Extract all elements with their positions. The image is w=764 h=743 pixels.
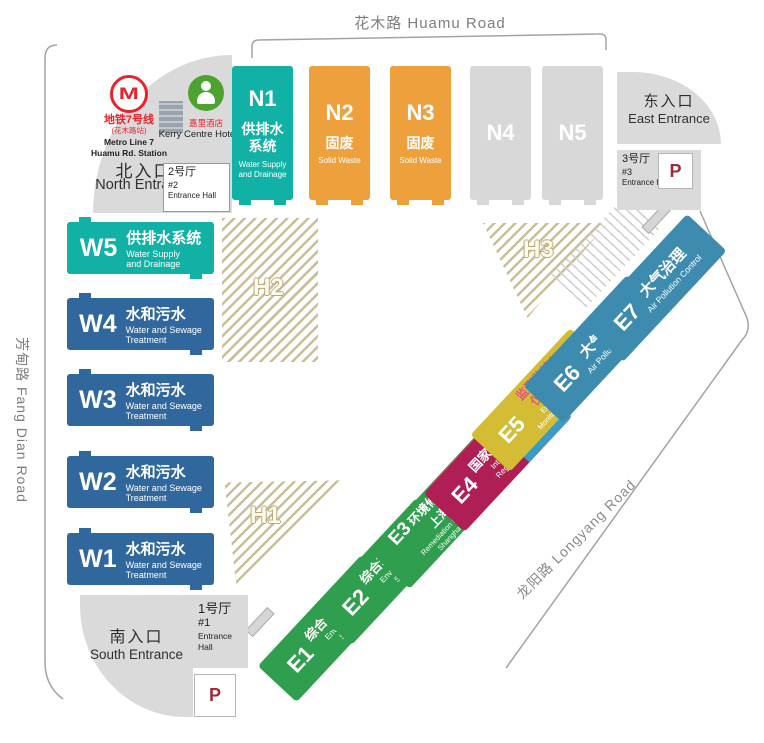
hall-n4-code: N4 xyxy=(486,120,514,146)
zone-h1: H1 xyxy=(222,478,346,592)
hall-n3-code: N3 xyxy=(406,100,434,126)
hall-n1-code: N1 xyxy=(248,86,276,112)
east-entrance-label-en: East Entrance xyxy=(617,111,721,126)
entrance-hall-1: 1号厅 #1 Entrance Hall xyxy=(193,595,248,668)
hall-w3-cn: 水和污水 xyxy=(126,379,202,400)
road-label-huamu: 花木路 Huamu Road xyxy=(330,12,530,33)
parking-icon-south: P xyxy=(194,674,236,717)
hall-e5-code: E5 xyxy=(493,411,530,448)
person-icon xyxy=(201,81,211,91)
east-entrance-label-cn: 东入口 xyxy=(617,90,721,111)
hall-n3: N3 固废 Solid Waste xyxy=(390,66,451,200)
hall-e4-code: E4 xyxy=(446,472,483,509)
entrance-hall-1-en: Entrance Hall xyxy=(198,631,243,652)
hall-w4-cn: 水和污水 xyxy=(126,303,202,324)
expo-floorplan-map: 花木路 Huamu Road 芳甸路 Fang Dian Road 龙阳路 Lo… xyxy=(0,0,764,743)
road-label-fangdian: 芳甸路 Fang Dian Road xyxy=(12,280,32,560)
hall-w4: W4 水和污水 Water and Sewage Treatment xyxy=(67,298,214,350)
entrance-hall-2-num: #2 xyxy=(168,180,225,191)
hall-e7-code: E7 xyxy=(609,299,646,336)
hall-n1: N1 供排水 系统 Water Supply and Drainage xyxy=(232,66,293,200)
hall-n3-cn: 固废 xyxy=(407,135,435,152)
entrance-hall-2: 2号厅 #2 Entrance Hall xyxy=(163,163,230,212)
hotel-label-cn: 嘉里酒店 xyxy=(171,117,241,129)
hall-n1-cn: 供排水 系统 xyxy=(242,121,284,155)
hall-n2-cn: 固废 xyxy=(326,135,354,152)
hall-w4-en: Water and Sewage Treatment xyxy=(126,325,202,346)
hall-w5-code: W5 xyxy=(80,234,118,263)
zone-h2-label: H2 xyxy=(253,274,284,302)
zone-h1-label: H1 xyxy=(250,502,281,530)
hall-n5: N5 xyxy=(542,66,603,200)
hall-w2: W2 水和污水 Water and Sewage Treatment xyxy=(67,456,214,508)
hotel-icon xyxy=(188,75,224,111)
hall-e6-code: E6 xyxy=(549,360,586,397)
connector-south xyxy=(245,607,274,637)
entrance-hall-1-cn: 1号厅 xyxy=(198,601,243,617)
east-entrance-area: 东入口 East Entrance xyxy=(617,72,721,144)
hall-n2-en: Solid Waste xyxy=(318,156,360,166)
hall-w3: W3 水和污水 Water and Sewage Treatment xyxy=(67,374,214,426)
hall-w5: W5 供排水系统 Water Supply and Drainage xyxy=(67,222,214,274)
hotel-label-en: Kerry Centre Hotel xyxy=(155,129,241,140)
south-entrance-label-cn: 南入口 xyxy=(80,623,193,647)
hall-w3-code: W3 xyxy=(79,386,117,415)
entrance-hall-1-num: #1 xyxy=(198,617,243,631)
hall-n1-en: Water Supply and Drainage xyxy=(238,160,286,180)
hall-w3-en: Water and Sewage Treatment xyxy=(126,401,202,422)
hall-n2-code: N2 xyxy=(325,100,353,126)
hall-w1-code: W1 xyxy=(79,545,117,574)
south-entrance-area: 南入口 South Entrance xyxy=(80,595,193,717)
zone-h3-label: H3 xyxy=(523,236,554,264)
hall-w5-en: Water Supply and Drainage xyxy=(126,249,201,270)
hall-w2-code: W2 xyxy=(79,468,117,497)
hall-w1-cn: 水和污水 xyxy=(126,538,202,559)
metro-logo-icon: M xyxy=(110,75,148,113)
hall-w2-en: Water and Sewage Treatment xyxy=(126,483,202,504)
entrance-hall-2-cn: 2号厅 xyxy=(168,166,225,180)
hall-n4: N4 xyxy=(470,66,531,200)
entrance-hall-2-en: Entrance Hall xyxy=(168,191,225,201)
hall-n2: N2 固废 Solid Waste xyxy=(309,66,370,200)
zone-h2: H2 xyxy=(222,218,318,362)
hall-w5-cn: 供排水系统 xyxy=(126,227,201,248)
south-entrance-label-en: South Entrance xyxy=(80,647,193,662)
hall-n3-en: Solid Waste xyxy=(399,156,441,166)
parking-icon-east: P xyxy=(658,153,693,189)
entrance-hall-3: 3号厅 #3 Entrance Hall P xyxy=(617,150,701,210)
hall-w2-cn: 水和污水 xyxy=(126,461,202,482)
hall-w1-en: Water and Sewage Treatment xyxy=(126,560,202,581)
hall-e2-code: E2 xyxy=(337,584,374,621)
hall-n5-code: N5 xyxy=(558,120,586,146)
hall-e1-code: E1 xyxy=(282,641,319,678)
hall-w4-code: W4 xyxy=(79,310,117,339)
hall-w1: W1 水和污水 Water and Sewage Treatment xyxy=(67,533,214,585)
